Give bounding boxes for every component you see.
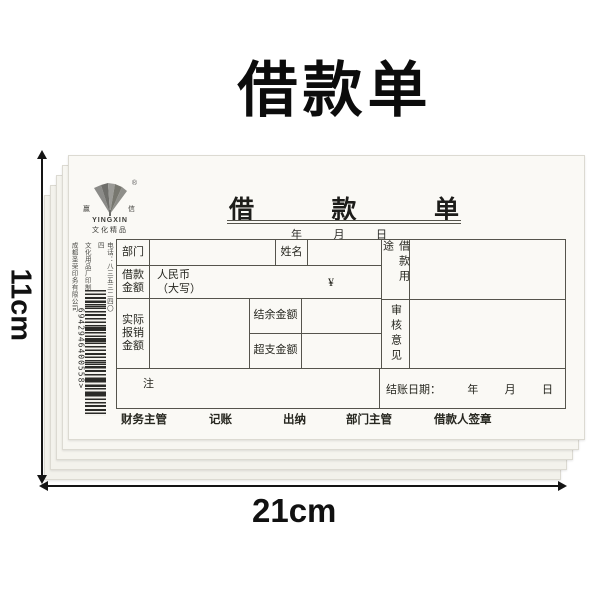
signature-label-bookkeeping: 记账 — [209, 411, 232, 427]
signature-label-dept-head: 部门主管 — [346, 411, 392, 427]
rmb-caps-l1: 人民币 — [157, 268, 381, 282]
signature-label-borrower: 借款人签章 — [434, 411, 492, 427]
actual-l3: 金额 — [122, 340, 144, 353]
form-title-underline — [227, 220, 461, 224]
height-dimension-line — [41, 158, 43, 476]
loan-amount-l2: 金额 — [122, 282, 144, 295]
barcode-terminator: > — [77, 383, 86, 389]
width-label: 21cm — [252, 492, 336, 530]
review-opinion-label: 审核意见 — [382, 300, 410, 368]
note-label: 注 — [143, 378, 154, 390]
name-value-cell — [308, 240, 381, 265]
settle-month-label: 月 — [505, 381, 516, 397]
arrow-left-icon — [39, 481, 48, 491]
signature-row: 财务主管 记账 出纳 部门主管 借款人签章 — [69, 411, 586, 427]
signature-label-cashier: 出纳 — [283, 411, 306, 427]
brand-tagline: 文化精品 — [77, 225, 143, 235]
table-row: 审核意见 — [382, 300, 565, 368]
overspend-value-cell — [302, 334, 381, 368]
review-opinion-value-cell — [410, 300, 565, 368]
actual-reimburse-value-cell — [150, 299, 250, 368]
barcode: 6942946400558> — [74, 286, 108, 420]
note-cell: 注 — [117, 369, 380, 408]
department-value-cell — [150, 240, 276, 265]
name-label: 姓名 — [276, 240, 308, 265]
actual-reimburse-label: 实际报销金额 — [117, 299, 150, 368]
loan-amount-l1: 借款 — [122, 269, 144, 282]
actual-l1: 实际 — [122, 314, 144, 327]
arrow-up-icon — [37, 150, 47, 159]
signature-label-finance: 财务主管 — [121, 411, 167, 427]
brand-logo: ® 赢 信 YINGXIN 文化精品 — [77, 180, 143, 235]
brand-side-char-left: 赢 — [83, 204, 90, 214]
loan-purpose-value-cell — [410, 240, 565, 299]
barcode-number: 6942946400558> — [77, 294, 86, 404]
settle-date-cell: 结账日期： 年 月 日 — [380, 369, 565, 408]
width-dimension-line — [48, 485, 560, 487]
product-image: 借款单 ® 赢 信 YINGXIN 文化精品 — [0, 0, 600, 600]
brand-name: YINGXIN — [77, 217, 143, 224]
department-label: 部门 — [117, 240, 150, 265]
height-label: 11cm — [4, 269, 37, 341]
brand-side-char-right: 信 — [128, 204, 135, 214]
rmb-caps-cell: 人民币 （大写） ¥ — [150, 266, 381, 298]
barcode-digits: 6942946400558 — [77, 308, 86, 384]
table-row: 部门 姓名 — [117, 240, 381, 266]
page-title: 借款单 — [70, 42, 600, 129]
table-row: 注 结账日期： 年 月 日 — [117, 368, 565, 408]
settle-year-label: 年 — [467, 381, 478, 397]
currency-symbol: ¥ — [328, 275, 334, 291]
settle-date-label: 结账日期： — [386, 381, 441, 397]
table-row: 结余金额 — [250, 299, 381, 334]
table-row: 超支金额 — [250, 334, 381, 368]
table-row: 借款金额 人民币 （大写） ¥ — [117, 266, 381, 299]
actual-l2: 报销 — [122, 327, 144, 340]
barcode-bars-icon — [85, 290, 106, 416]
loan-purpose-label: 借款用途 — [382, 240, 410, 299]
balance-label: 结余金额 — [250, 299, 302, 333]
loan-form-sheet: ® 赢 信 YINGXIN 文化精品 成都圣荣印务有限公司 文化用品厂印制 电话… — [68, 155, 585, 440]
rmb-caps-l2: （大写） — [157, 282, 381, 296]
balance-value-cell — [302, 299, 381, 333]
loan-amount-label: 借款金额 — [117, 266, 150, 298]
settle-day-label: 日 — [542, 381, 553, 397]
arrow-right-icon — [558, 481, 567, 491]
table-row: 实际报销金额 结余金额 超支金额 — [117, 299, 381, 368]
loan-form-table: 部门 姓名 借款金额 人民币 （大写） ¥ — [116, 239, 566, 409]
table-row: 借款用途 — [382, 240, 565, 300]
overspend-label: 超支金额 — [250, 334, 302, 368]
registered-mark-icon: ® — [132, 180, 137, 187]
